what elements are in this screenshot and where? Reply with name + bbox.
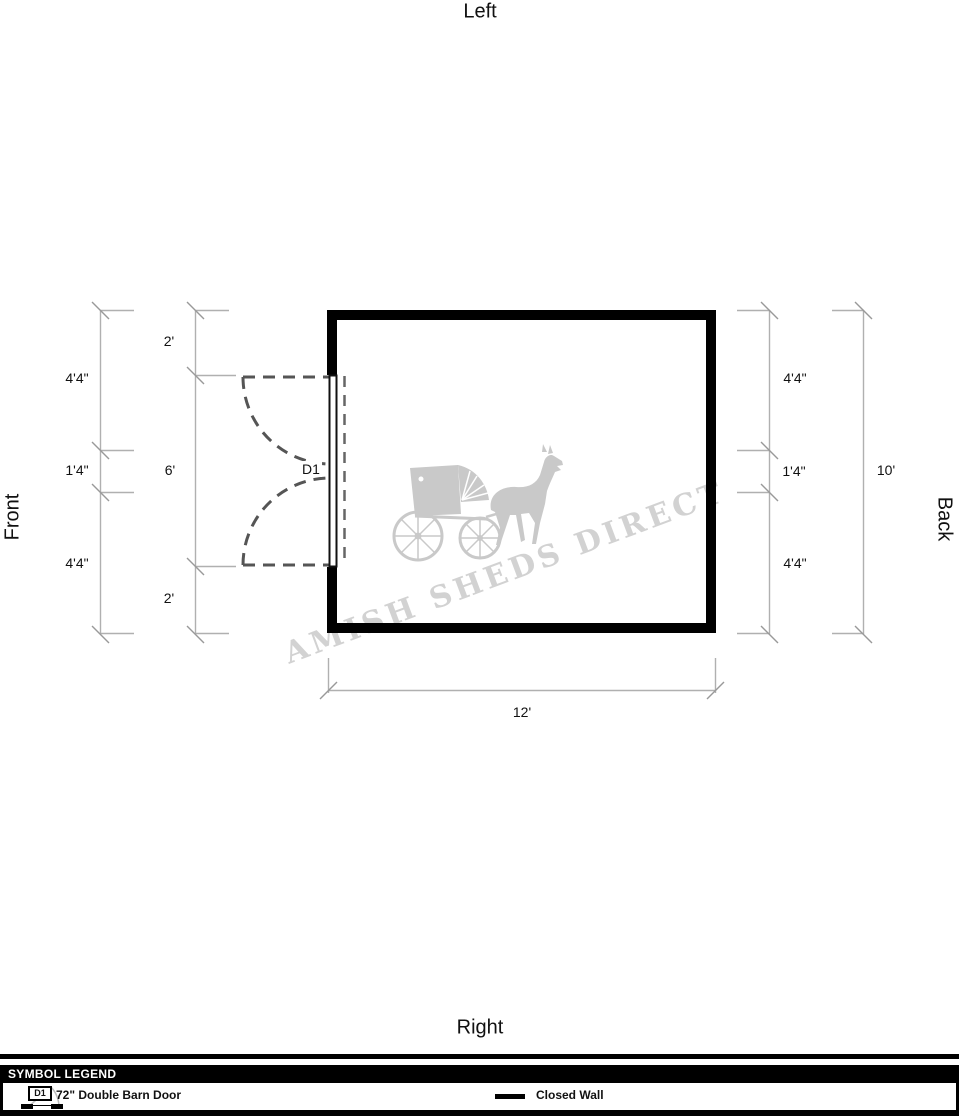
shed-walls — [327, 310, 716, 633]
dim-right-inner-top: 4'4" — [783, 370, 806, 386]
dim-left-inner-top: 2' — [164, 333, 174, 349]
door-legend-label: 72" Double Barn Door — [56, 1083, 181, 1110]
dim-left-outer-bottom: 4'4" — [65, 555, 88, 571]
dim-left-inner-middle: 6' — [165, 462, 175, 478]
dim-left-outer-middle: 1'4" — [65, 462, 88, 478]
legend-bottom-border — [0, 1110, 959, 1116]
legend-header-title: SYMBOL LEGEND — [0, 1065, 959, 1083]
dim-left-outer-top: 4'4" — [65, 370, 88, 386]
dim-bottom-overall: 12' — [513, 704, 531, 720]
closed-wall-legend-label: Closed Wall — [536, 1083, 604, 1110]
orientation-label-front: Front — [2, 494, 25, 541]
legend-header: SYMBOL LEGEND — [0, 1065, 959, 1083]
dim-left-inner-bottom: 2' — [164, 590, 174, 606]
floor-plan-page: Left Right Front Back AMISH SHEDS DIRECT — [0, 0, 959, 1116]
dim-right-inner-middle: 1'4" — [782, 463, 805, 479]
door-opening — [326, 375, 338, 567]
closed-wall-icon — [495, 1094, 525, 1099]
door-symbol-code: D1 — [28, 1086, 52, 1101]
door-tag: D1 — [300, 461, 322, 477]
orientation-label-top: Left — [463, 1, 496, 24]
dim-right-overall: 10' — [877, 462, 895, 478]
orientation-label-bottom: Right — [457, 1017, 504, 1040]
orientation-label-back: Back — [933, 497, 956, 541]
dim-right-inner-bottom: 4'4" — [783, 555, 806, 571]
legend-top-border — [0, 1054, 959, 1059]
legend-row: D1 72" Double Barn Door Closed Wall — [0, 1083, 959, 1110]
